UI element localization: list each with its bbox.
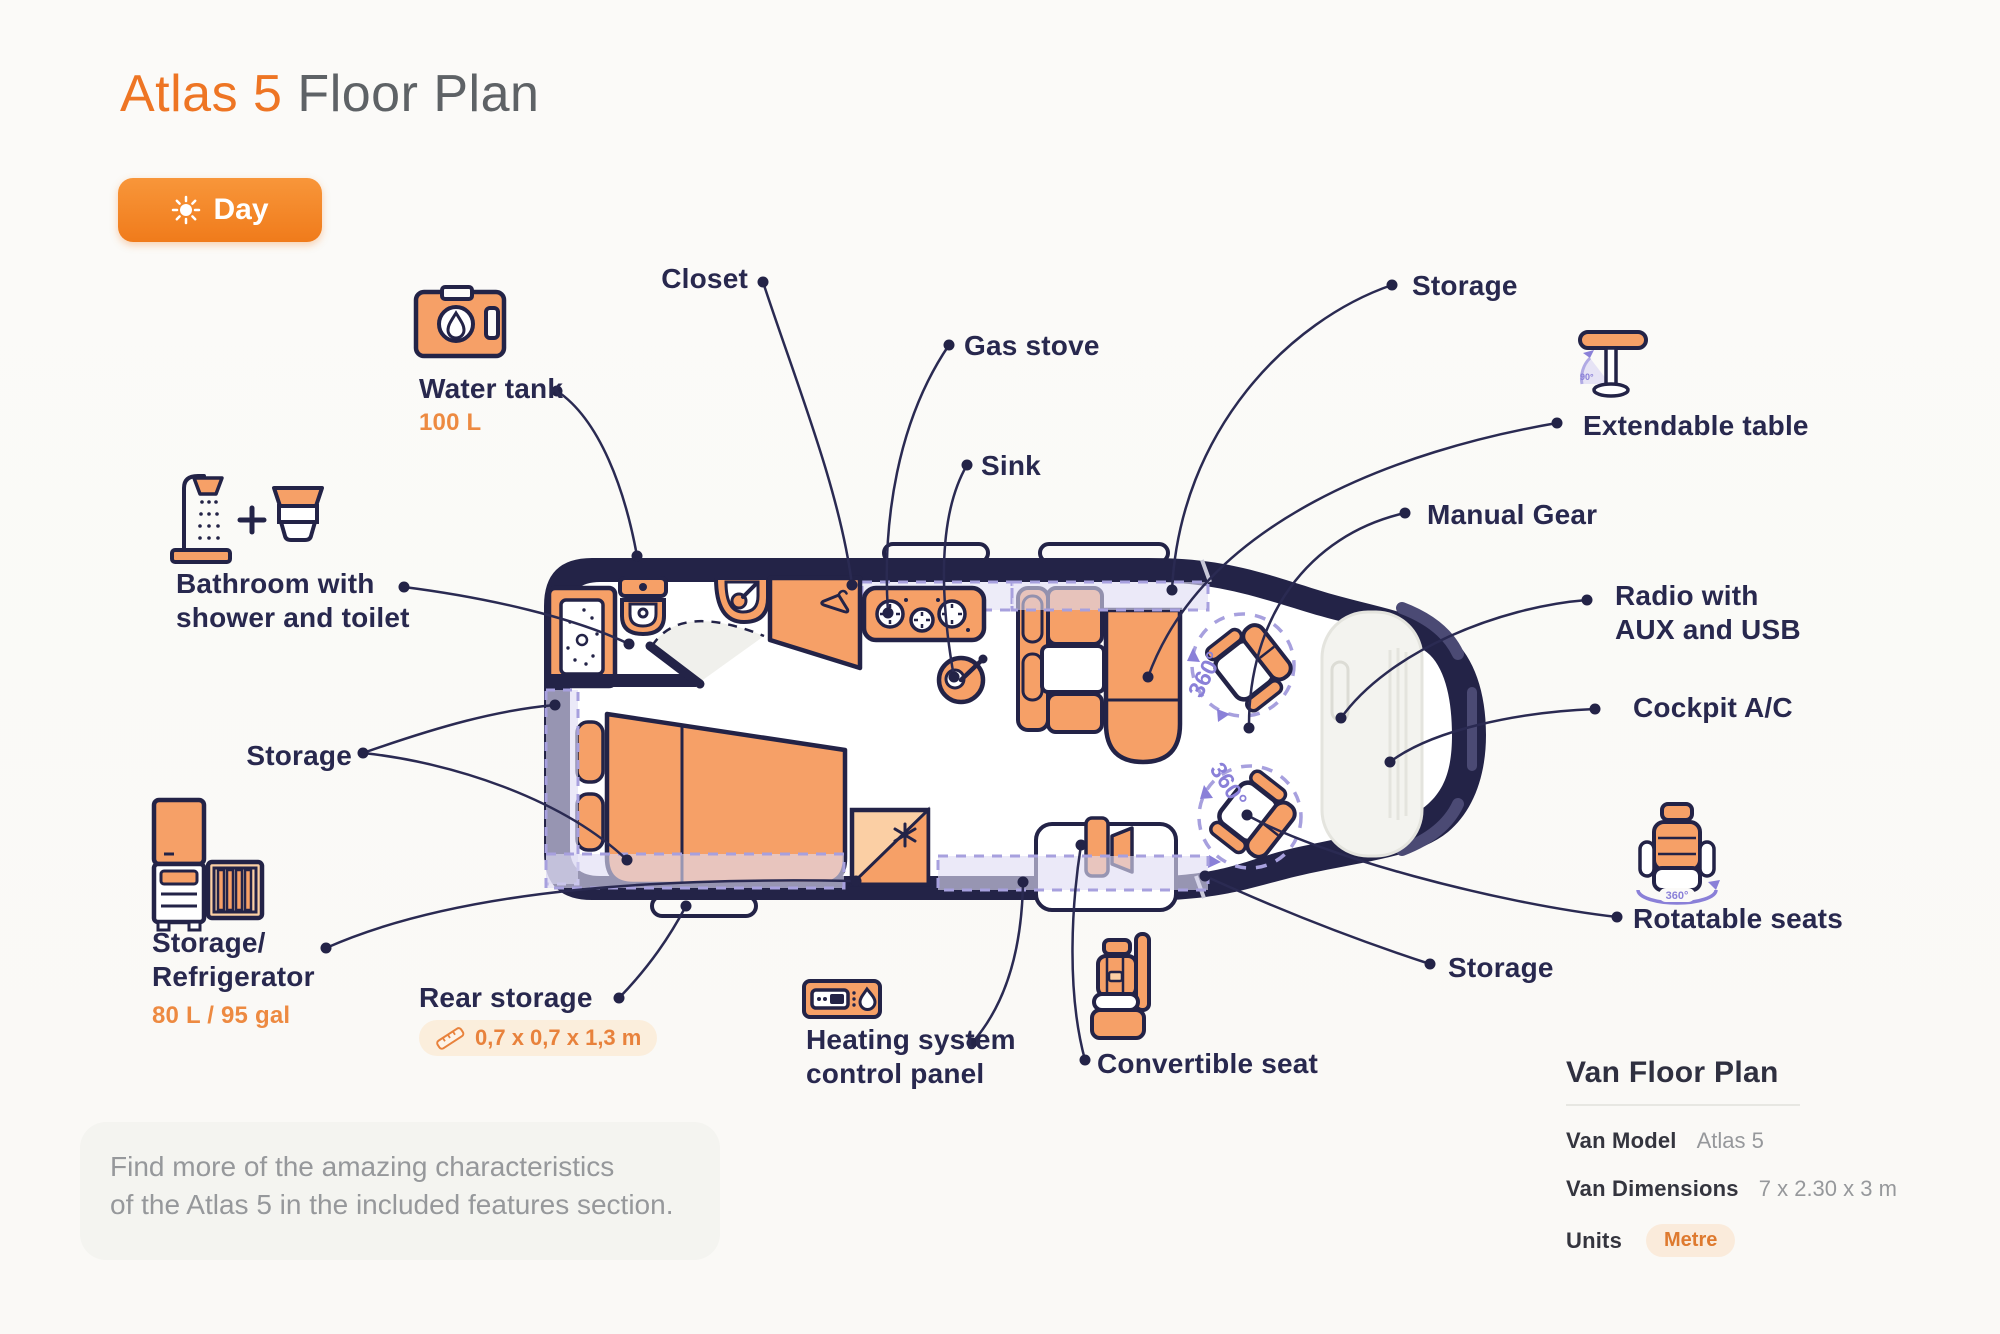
rear-storage-dimensions: 0,7 x 0,7 x 1,3 m — [475, 1025, 641, 1051]
page-title-rest: Floor Plan — [282, 65, 539, 123]
units-metre-chip[interactable]: Metre — [1646, 1224, 1735, 1257]
shower-icon — [172, 476, 230, 562]
features-note: Find more of the amazing characteristics… — [80, 1122, 720, 1260]
van-model-label: Van Model — [1566, 1128, 1677, 1154]
dinette-bench — [1048, 694, 1102, 732]
ruler-icon — [435, 1026, 465, 1050]
callout-sink: Sink — [981, 449, 1041, 483]
van-info-panel: Van Floor Plan Van Model Atlas 5 Van Dim… — [1566, 1056, 1946, 1257]
callout-storage-refrigerator: Storage/ Refrigerator — [152, 926, 315, 993]
units-label: Units — [1566, 1228, 1622, 1254]
extendable-table-icon: 90° — [1580, 332, 1646, 396]
toilet-icon — [274, 488, 322, 540]
van-dimensions-row: Van Dimensions 7 x 2.30 x 3 m — [1566, 1176, 1946, 1202]
refrigerator-unit — [852, 810, 928, 884]
callout-storage-left: Storage — [246, 739, 352, 773]
van-dimensions-label: Van Dimensions — [1566, 1176, 1739, 1202]
callout-bathroom: Bathroom with shower and toilet — [176, 567, 410, 634]
floor-storage-front — [938, 856, 1208, 890]
callout-water-tank: Water tank — [419, 372, 563, 406]
sun-icon — [171, 195, 201, 225]
callout-convertible-seat: Convertible seat — [1097, 1047, 1318, 1081]
van-dimensions-value: 7 x 2.30 x 3 m — [1759, 1176, 1897, 1202]
heating-panel-icon — [804, 981, 880, 1017]
callout-rear-storage: Rear storage — [419, 981, 593, 1015]
callout-closet: Closet — [661, 262, 748, 296]
overhead-storage-dinette — [1012, 582, 1208, 610]
callout-cockpit-ac: Cockpit A/C — [1633, 691, 1793, 725]
rotation-360-label: 360° — [1666, 890, 1689, 902]
pillow — [577, 722, 603, 782]
dashboard — [1322, 612, 1422, 856]
rotatable-seat-icon: 360° — [1638, 804, 1720, 903]
fold-90-label: 90° — [1580, 372, 1594, 382]
bathroom-wall — [544, 674, 696, 687]
day-night-toggle[interactable]: Day — [118, 178, 322, 242]
rear-storage-dimensions-pill: 0,7 x 0,7 x 1,3 m — [419, 1020, 657, 1056]
callout-manual-gear: Manual Gear — [1427, 498, 1597, 532]
refrigerator-capacity: 80 L / 95 gal — [152, 1002, 290, 1030]
callout-storage-bottom: Storage — [1448, 951, 1554, 985]
info-panel-title: Van Floor Plan — [1566, 1056, 1946, 1090]
dinette-table — [1042, 646, 1104, 692]
refrigerator-icon — [154, 800, 262, 930]
page-title-model: Atlas 5 — [120, 65, 282, 123]
bathroom-sink — [716, 578, 768, 622]
units-row: Units Metre — [1566, 1224, 1946, 1257]
callout-storage-top: Storage — [1412, 269, 1518, 303]
toilet — [620, 578, 666, 634]
van-model-value: Atlas 5 — [1697, 1128, 1764, 1154]
atlas5-floorplan-page: 360° 360° — [0, 0, 2000, 1334]
callout-heating: Heating system control panel — [806, 1023, 1016, 1090]
plus-icon — [240, 508, 264, 532]
divider — [1566, 1104, 1800, 1106]
units-value: Metre — [1664, 1229, 1717, 1251]
callout-radio: Radio with AUX and USB — [1615, 579, 1801, 646]
page-title: Atlas 5 Floor Plan — [120, 64, 539, 124]
water-tank-capacity: 100 L — [419, 409, 481, 437]
callout-rotatable-seats: Rotatable seats — [1633, 902, 1843, 936]
van-model-row: Van Model Atlas 5 — [1566, 1128, 1946, 1154]
water-tank-icon — [416, 287, 504, 356]
callout-extendable-table: Extendable table — [1583, 409, 1809, 443]
storage-crate-icon — [208, 862, 262, 918]
callout-gas-stove: Gas stove — [964, 329, 1100, 363]
convertible-seat-icon — [1092, 934, 1149, 1038]
pillow — [577, 794, 603, 850]
day-toggle-label: Day — [213, 193, 268, 227]
